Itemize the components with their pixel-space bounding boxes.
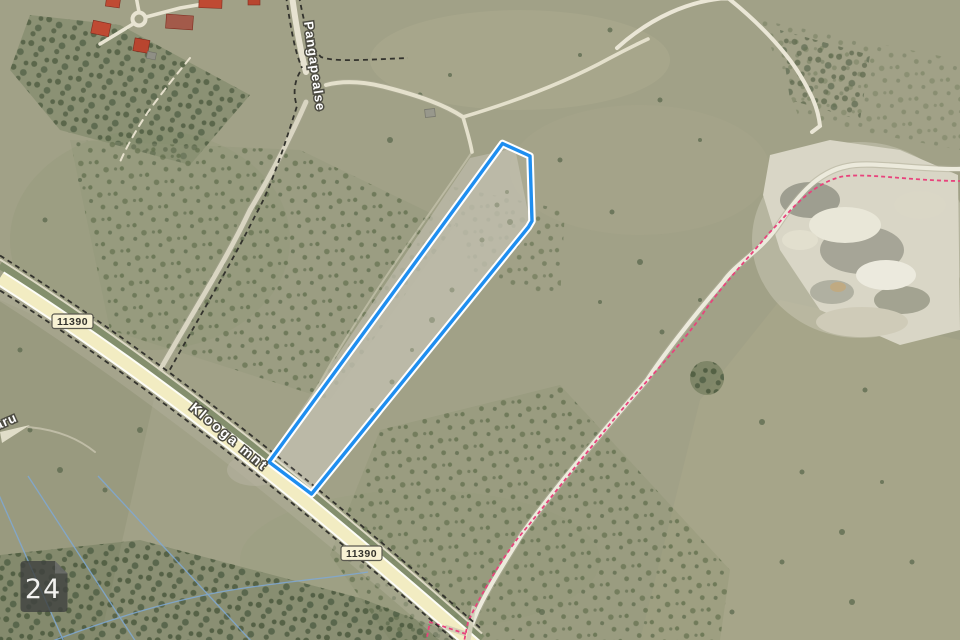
road-number-text: 11390 [346,548,377,560]
satellite-map-image[interactable]: Pangapealse Klooga mnt aru 11390 11390 2… [0,0,960,640]
map-sheet-number: 24 [25,574,61,605]
road-number-text: 11390 [57,316,88,328]
map-viewport[interactable]: Pangapealse Klooga mnt aru 11390 11390 2… [0,0,960,640]
road-number-badge-west: 11390 [52,314,93,329]
map-sheet-badge: 24 [21,561,68,612]
road-number-badge-east: 11390 [341,546,382,561]
